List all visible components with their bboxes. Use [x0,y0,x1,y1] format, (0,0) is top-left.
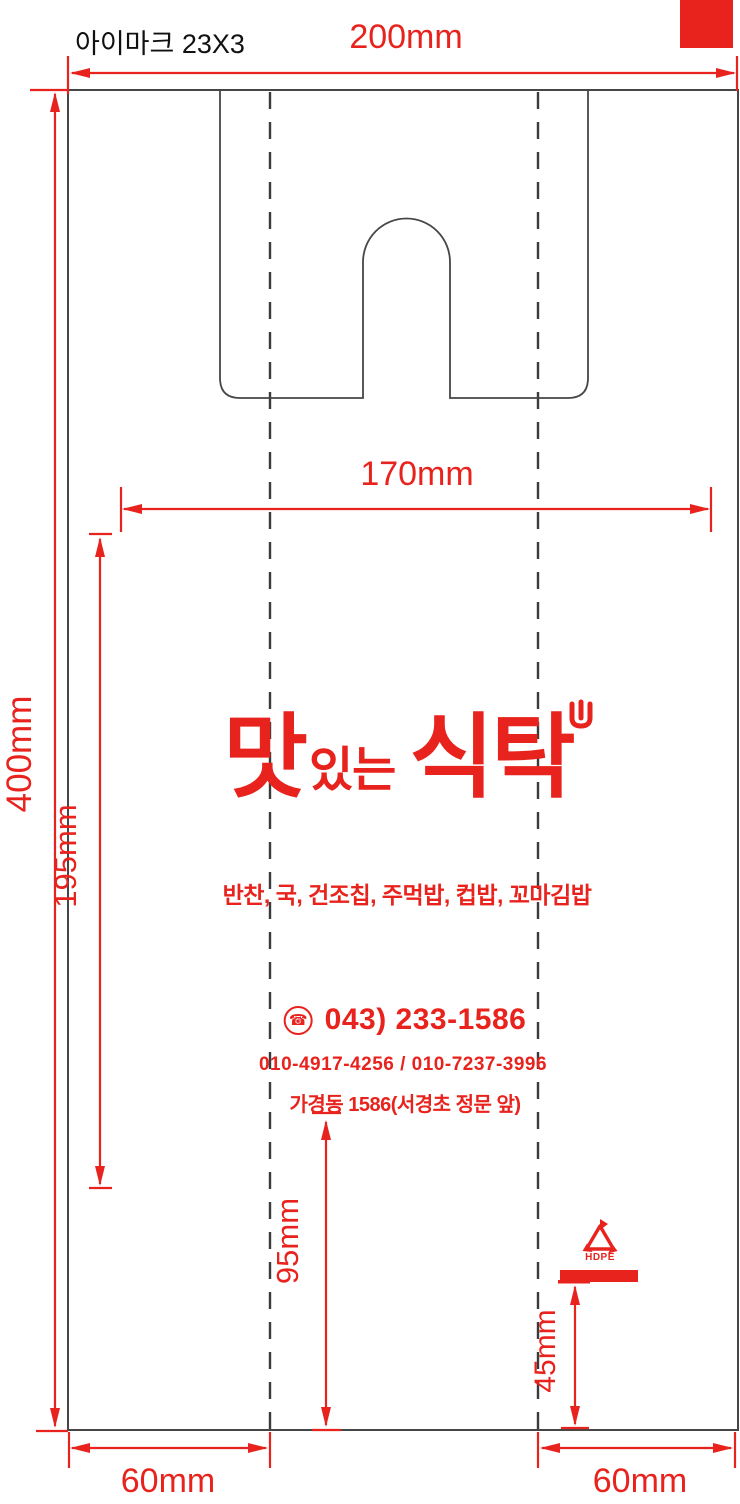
recycle-material-label: HDPE [585,1252,615,1263]
dim-label-bar-to-bottom: 45mm [529,1309,563,1392]
logo-part-1: 맛 [223,712,305,804]
menu-line: 반찬, 국, 건조칩, 주먹밥, 컵밥, 꼬마김밥 [223,876,592,910]
dim-200mm-graphic [68,56,737,94]
recycle-hdpe-icon [583,1219,618,1254]
plate-note: 아이마크 23X3 [75,22,245,61]
phone-main: 043) 233-1586 [325,1003,527,1037]
dim-label-width: 200mm [349,18,462,57]
brand-logo: 맛 있는 식탁 [223,712,572,804]
seal-bar [558,1270,638,1284]
dim-label-inner-width: 170mm [360,455,473,494]
phone-mobile: 010-4917-4256 / 010-7237-3996 [259,1054,547,1076]
fork-icon [572,702,590,726]
logo-part-2: 있는 [305,721,399,795]
dim-label-gusset-left: 60mm [121,1462,215,1501]
dim-label-address-to-bottom: 95mm [270,1198,306,1284]
phone-icon: ☎ [284,1006,313,1035]
handle-cutout [220,90,588,398]
address-line: 가경동 1586(서경초 정문 앞) [289,1088,520,1117]
logo-part-3: 식탁 [409,712,572,804]
dim-95mm-graphic [312,1113,341,1430]
dim-label-print-height: 195mm [48,804,84,907]
phone-row: ☎ 043) 233-1586 [284,1003,527,1037]
dim-label-height: 400mm [0,696,40,813]
dim-195mm-graphic [89,534,112,1188]
bag-dieline-proof: 아이마크 23X3 200mm 170mm 400mm 195mm 95mm 4… [0,0,740,1504]
dim-45mm-graphic [561,1285,589,1428]
color-chip [680,0,733,48]
dim-label-gusset-right: 60mm [593,1462,687,1501]
